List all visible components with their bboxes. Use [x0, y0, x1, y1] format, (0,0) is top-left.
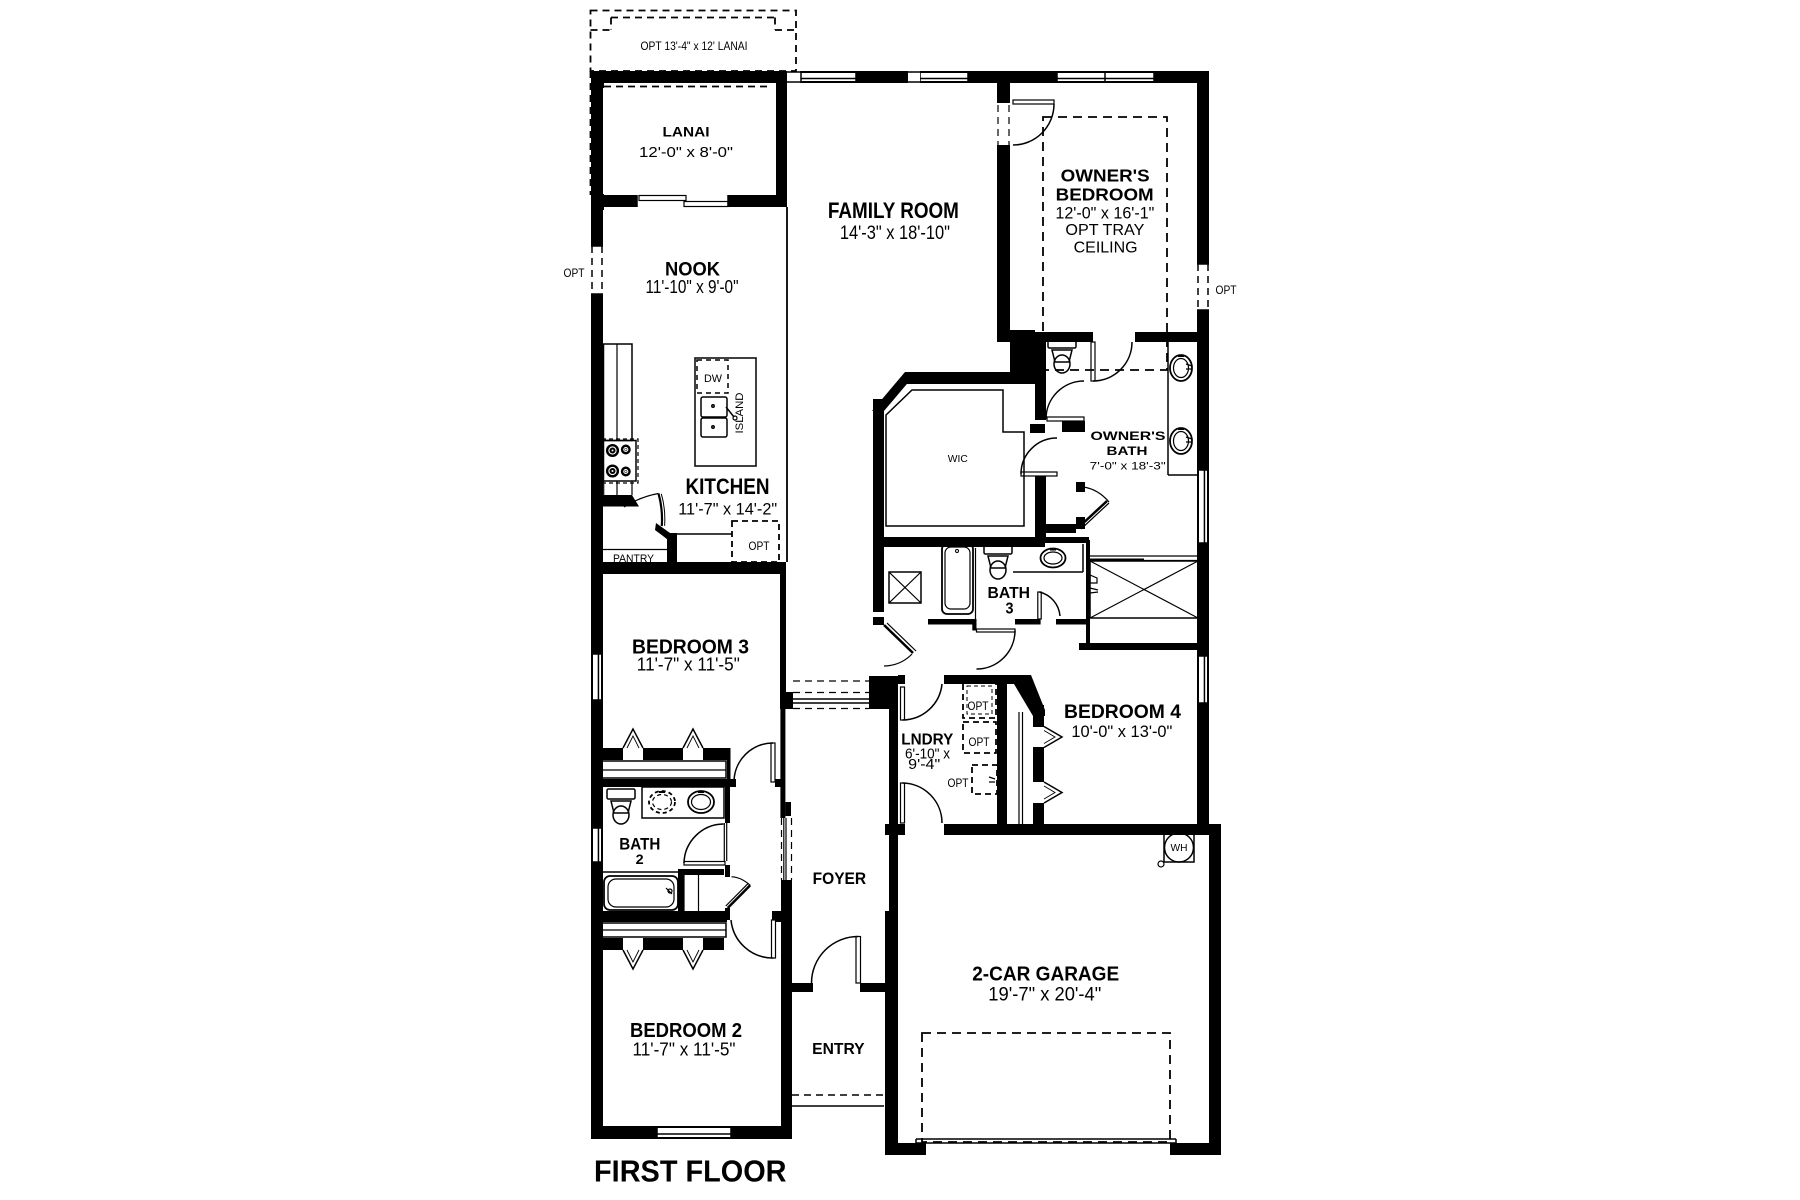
svg-text:ENTRY: ENTRY [812, 1041, 865, 1058]
svg-text:OPT: OPT [969, 735, 991, 749]
svg-text:2-CAR GARAGE: 2-CAR GARAGE [972, 964, 1119, 986]
svg-text:OPT: OPT [564, 266, 586, 280]
svg-text:OWNER'S: OWNER'S [1091, 429, 1166, 443]
svg-text:OPT: OPT [749, 539, 771, 553]
svg-text:OPT: OPT [968, 699, 990, 713]
svg-text:BEDROOM 4: BEDROOM 4 [1064, 702, 1181, 723]
svg-text:FOYER: FOYER [813, 870, 867, 888]
svg-text:LANAI: LANAI [663, 124, 710, 140]
svg-text:14'-3" x 18'-10": 14'-3" x 18'-10" [840, 223, 950, 244]
svg-text:OPT 13'-4" x 12' LANAI: OPT 13'-4" x 12' LANAI [641, 41, 748, 53]
svg-text:10'-0" x 13'-0": 10'-0" x 13'-0" [1071, 723, 1172, 741]
svg-text:WH: WH [1171, 842, 1188, 854]
svg-text:ISLAND: ISLAND [734, 392, 746, 433]
svg-text:PANTRY: PANTRY [613, 553, 655, 565]
svg-text:11'-7" x 11'-5": 11'-7" x 11'-5" [637, 654, 740, 675]
svg-text:BATH: BATH [1107, 444, 1148, 458]
svg-text:FAMILY ROOM: FAMILY ROOM [828, 198, 959, 223]
svg-text:OPT: OPT [948, 776, 970, 790]
svg-text:12'-0" x 8'-0": 12'-0" x 8'-0" [639, 144, 733, 161]
svg-text:2: 2 [636, 851, 644, 867]
svg-text:3: 3 [1006, 600, 1014, 617]
svg-text:OPT: OPT [1216, 283, 1238, 297]
svg-text:11'-7" x 14'-2": 11'-7" x 14'-2" [678, 501, 777, 519]
svg-text:19'-7" x 20'-4": 19'-7" x 20'-4" [988, 985, 1101, 1006]
svg-text:7'-0" x 18'-3": 7'-0" x 18'-3" [1090, 460, 1166, 472]
svg-text:OWNER'S: OWNER'S [1061, 166, 1150, 186]
svg-text:11'-7" x 11'-5": 11'-7" x 11'-5" [633, 1039, 736, 1060]
svg-text:CEILING: CEILING [1074, 240, 1138, 257]
svg-text:FIRST FLOOR: FIRST FLOOR [594, 1154, 787, 1189]
svg-text:KITCHEN: KITCHEN [686, 474, 770, 499]
svg-text:OPT TRAY: OPT TRAY [1065, 222, 1144, 239]
svg-text:BATH: BATH [988, 585, 1031, 602]
svg-text:DW: DW [704, 373, 723, 385]
svg-text:12'-0" x 16'-1": 12'-0" x 16'-1" [1055, 204, 1154, 222]
svg-text:11'-10" x 9'-0": 11'-10" x 9'-0" [646, 277, 739, 297]
svg-text:9'-4": 9'-4" [908, 757, 940, 773]
svg-text:WIC: WIC [948, 454, 968, 465]
svg-text:BEDROOM: BEDROOM [1056, 185, 1154, 205]
